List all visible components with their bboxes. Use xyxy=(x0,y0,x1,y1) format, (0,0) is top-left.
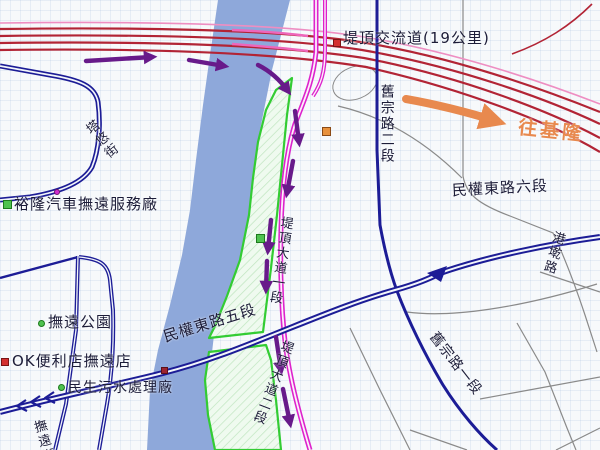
label-yulon-service: 裕隆汽車撫遠服務廠 xyxy=(14,197,158,213)
label-sewage-plant: 民生污水處理廠 xyxy=(68,381,173,396)
to-keelung-arrow xyxy=(406,99,496,121)
bridge-marker-icon xyxy=(161,367,168,374)
yulon-marker-icon xyxy=(3,200,12,209)
sewage-plant-marker-icon xyxy=(58,384,65,391)
poi-square-orange-icon xyxy=(322,127,331,136)
label-ok-store: OK便利店撫遠店 xyxy=(12,354,132,370)
fuyuan-park-marker-icon xyxy=(38,320,45,327)
label-jiuzong-rd-sec2: 舊宗路二段 xyxy=(379,84,394,164)
park-poi-square-icon xyxy=(256,234,265,243)
label-fuyuan-park: 撫遠公園 xyxy=(48,315,112,331)
poi-dot-magenta-icon xyxy=(54,189,60,195)
ok-store-marker-icon xyxy=(1,358,9,366)
map-canvas: 堤頂交流道(19公里) 往基隆 舊宗路二段 民權東路六段 港墘路 民權東路五段 … xyxy=(0,0,600,450)
label-tiding-interchange: 堤頂交流道(19公里) xyxy=(343,31,490,47)
interchange-marker-icon xyxy=(333,39,341,47)
